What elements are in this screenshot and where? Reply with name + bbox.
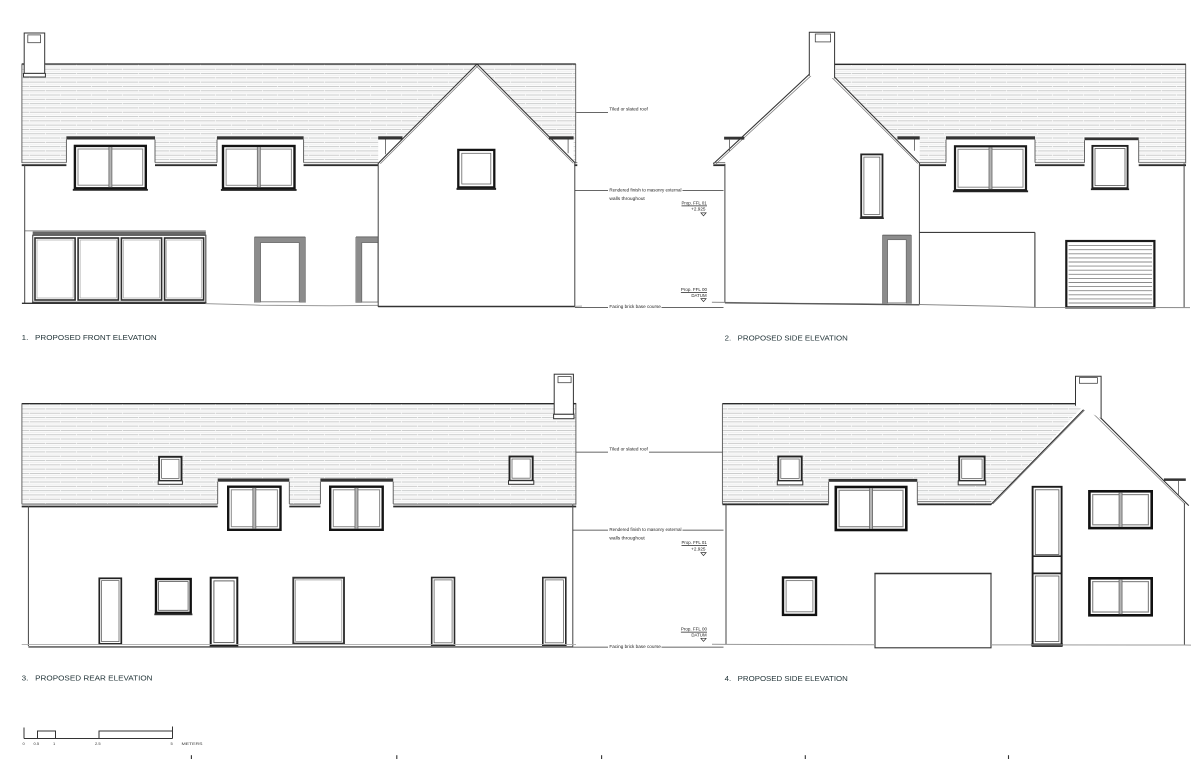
svg-text:Tiled or slated roof: Tiled or slated roof [609,446,648,451]
svg-text:2. PROPOSED SIDE ELEVATION: 2. PROPOSED SIDE ELEVATION [725,336,848,343]
svg-text:Facing brick base course: Facing brick base course [609,304,661,309]
svg-text:2.5: 2.5 [95,741,101,746]
svg-text:Facing brick base course: Facing brick base course [609,644,661,649]
svg-text:DATUM: DATUM [691,633,707,638]
svg-text:0.5: 0.5 [34,741,40,746]
svg-text:Prop. FFL 01: Prop. FFL 01 [682,200,708,205]
svg-text:3. PROPOSED REAR ELEVATION: 3. PROPOSED REAR ELEVATION [22,676,153,683]
svg-text:Prop. FFL 01: Prop. FFL 01 [682,540,708,545]
svg-text:1. PROPOSED FRONT ELEVATION: 1. PROPOSED FRONT ELEVATION [22,335,157,342]
svg-text:Rendered finish to masonry ext: Rendered finish to masonry external [609,187,681,192]
svg-text:+2.925: +2.925 [691,546,706,551]
svg-text:walls throughout: walls throughout [609,536,645,541]
svg-text:Prop. FFL 00: Prop. FFL 00 [681,627,708,632]
svg-text:Prop. FFL 00: Prop. FFL 00 [681,287,708,292]
svg-text:Rendered finish to masonry ext: Rendered finish to masonry external [609,527,681,532]
svg-text:METERS: METERS [182,741,203,746]
svg-text:DATUM: DATUM [691,293,707,298]
svg-text:Tiled or slated roof: Tiled or slated roof [609,107,648,112]
svg-text:walls throughout: walls throughout [609,196,645,201]
svg-text:4. PROPOSED SIDE ELEVATION: 4. PROPOSED SIDE ELEVATION [725,676,848,683]
svg-text:+2.925: +2.925 [691,207,706,212]
